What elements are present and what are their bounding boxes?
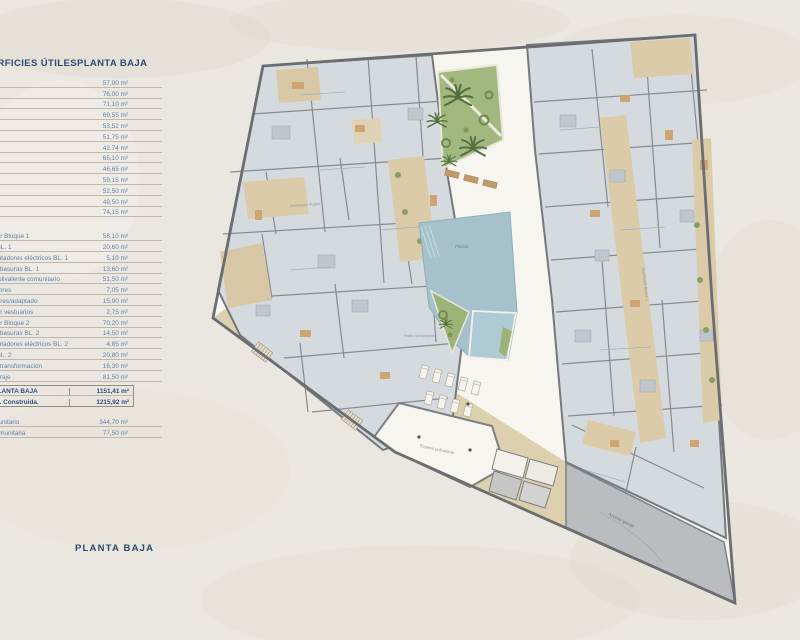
pool-label: Piscina (455, 244, 469, 249)
row-value: 2,75 m² (106, 309, 128, 316)
table-row: 76,00 m² (0, 88, 162, 99)
row-value: 46,65 m² (103, 166, 128, 173)
table-row: 51,75 m² (0, 131, 162, 142)
row-label: Piscina comunitaria (0, 430, 25, 437)
row-value: 52,50 m² (103, 188, 128, 195)
row-value: 58,10 m² (103, 233, 128, 240)
table-row: Centro de transformación16,30 m² (0, 360, 162, 371)
row-label: Cuarto de basuras BL. 1 (0, 266, 39, 273)
row-value: 59,15 m² (103, 177, 128, 184)
table-row: 59,15 m² (0, 174, 162, 185)
row-value: 53,52 m² (103, 123, 128, 130)
row-value: 69,55 m² (103, 112, 128, 119)
table-row: Patio comunitario344,70 m² (0, 416, 162, 427)
row-label: Almacén BL. 1 (0, 244, 12, 251)
row-value: 42,74 m² (103, 145, 128, 152)
row-label: Almacén BL. 2 (0, 352, 12, 359)
row-label: Cuarto contadores eléctricos BL. 2 (0, 341, 68, 348)
table-header: SUPERFICIES ÚTILES PLANTA BAJA (0, 58, 162, 69)
row-value: 1215,92 m² (69, 399, 129, 406)
row-label: Distribuidor vestuarios (0, 309, 33, 316)
table-row: Distribuidor vestuarios2,75 m² (0, 306, 162, 317)
table-row: Cuarto de basuras BL. 113,60 m² (0, 263, 162, 274)
table-row: 53,52 m² (0, 120, 162, 131)
plan-sheet: Piscina Patio comunitario Espacio poliva… (0, 0, 800, 640)
row-label: Aseo hombres (0, 287, 11, 294)
row-value: 76,00 m² (103, 91, 128, 98)
row-value: 70,20 m² (103, 320, 128, 327)
table-row: Cuarto contadores eléctricos BL. 15,10 m… (0, 252, 162, 263)
table-row: Aseo mujeres/adaptado15,90 m² (0, 295, 162, 306)
table-row: Total Sup. Construida.1215,92 m² (0, 396, 133, 406)
surfaces-table: SUPERFICIES ÚTILES PLANTA BAJA 57,00 m²7… (0, 58, 162, 438)
row-value: 51,75 m² (103, 134, 128, 141)
row-value: 77,50 m² (103, 430, 128, 437)
row-value: 65,10 m² (103, 155, 128, 162)
table-row: 69,55 m² (0, 109, 162, 120)
table-row: Aseo hombres7,05 m² (0, 284, 162, 295)
row-value: 16,30 m² (103, 363, 128, 370)
row-value: 51,50 m² (103, 276, 128, 283)
row-label: Cuarto contadores eléctricos BL. 1 (0, 255, 68, 262)
table-row: 65,10 m² (0, 153, 162, 164)
table-row: Piscina comunitaria77,50 m² (0, 427, 162, 438)
row-value: 1151,41 m² (69, 388, 129, 395)
row-value: 74,15 m² (103, 209, 128, 216)
row-value: 20,60 m² (103, 244, 128, 251)
table-row: 57,00 m² (0, 77, 162, 88)
table-row: Cuarto contadores eléctricos BL. 24,85 m… (0, 338, 162, 349)
row-value: 15,90 m² (103, 298, 128, 305)
row-label: Espacio polivalente comunitario (0, 276, 60, 283)
summary-rows-group: TOTAL PLANTA BAJA1151,41 m²Total Sup. Co… (0, 385, 134, 408)
row-label: Distribuidor Bloque 1 (0, 233, 29, 240)
table-row: 74,15 m² (0, 207, 162, 218)
table-title: SUPERFICIES ÚTILES (0, 58, 77, 69)
table-row: Almacén BL. 220,80 m² (0, 349, 162, 360)
table-row: TOTAL PLANTA BAJA1151,41 m² (0, 386, 133, 397)
row-label: Acceso garaje (0, 374, 11, 381)
table-row: 71,10 m² (0, 99, 162, 110)
patio-label: Patio comunitario (404, 333, 436, 338)
row-value: 7,05 m² (106, 287, 128, 294)
row-value: 14,50 m² (103, 330, 128, 337)
row-value: 13,60 m² (103, 266, 128, 273)
row-value: 57,00 m² (103, 80, 128, 87)
row-label: Distribuidor Bloque 2 (0, 320, 29, 327)
table-column-title: PLANTA BAJA (77, 58, 147, 69)
table-row: Espacio polivalente comunitario51,50 m² (0, 274, 162, 285)
floor-name-label: PLANTA BAJA (75, 543, 154, 554)
table-row: Acceso garaje81,50 m² (0, 371, 162, 382)
row-label: Centro de transformación (0, 363, 42, 370)
row-value: 81,50 m² (103, 374, 128, 381)
table-row: Almacén BL. 120,60 m² (0, 241, 162, 252)
row-label: Patio comunitario (0, 419, 19, 426)
row-value: 49,50 m² (103, 199, 128, 206)
row-value: 344,70 m² (99, 419, 128, 426)
outdoor-rows-group: Patio comunitario344,70 m²Piscina comuni… (0, 416, 162, 438)
table-row: 49,50 m² (0, 196, 162, 207)
table-row: Distribuidor Bloque 270,20 m² (0, 317, 162, 328)
row-value: 5,10 m² (106, 255, 128, 262)
row-label: Cuarto de basuras BL. 2 (0, 330, 39, 337)
row-value: 20,80 m² (103, 352, 128, 359)
row-label: TOTAL PLANTA BAJA (0, 388, 38, 395)
row-value: 71,10 m² (103, 101, 128, 108)
unit-rows-group: 57,00 m²76,00 m²71,10 m²69,55 m²53,52 m²… (0, 77, 162, 217)
common-rows-group: Distribuidor Bloque 158,10 m²Almacén BL.… (0, 230, 162, 381)
row-value: 4,85 m² (106, 341, 128, 348)
table-row: Distribuidor Bloque 158,10 m² (0, 230, 162, 241)
row-label: Total Sup. Construida. (0, 399, 39, 406)
table-row: 52,50 m² (0, 185, 162, 196)
table-row: Cuarto de basuras BL. 214,50 m² (0, 328, 162, 339)
table-row: 42,74 m² (0, 142, 162, 153)
table-row: 46,65 m² (0, 163, 162, 174)
row-label: Aseo mujeres/adaptado (0, 298, 38, 305)
